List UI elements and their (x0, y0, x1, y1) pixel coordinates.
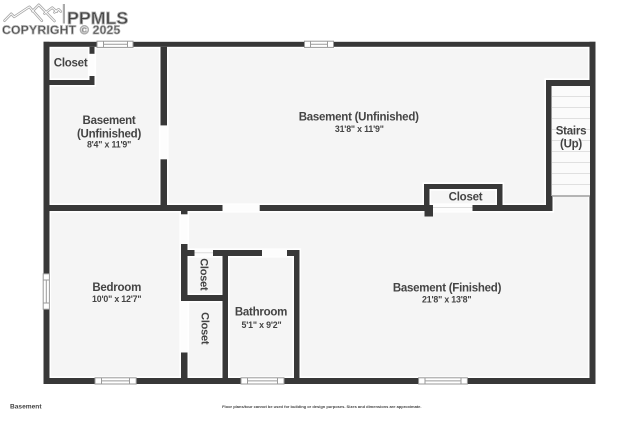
svg-text:COPYRIGHT © 2025: COPYRIGHT © 2025 (2, 23, 121, 37)
svg-text:Bedroom: Bedroom (92, 282, 141, 294)
svg-text:Closet: Closet (54, 57, 88, 69)
svg-text:10'0" x 12'7": 10'0" x 12'7" (92, 294, 141, 304)
svg-text:Basement (Unfinished): Basement (Unfinished) (299, 111, 419, 123)
svg-text:Closet: Closet (197, 258, 209, 291)
svg-text:Floor plans/tour cannot be use: Floor plans/tour cannot be used for buil… (222, 404, 421, 409)
svg-text:(Up): (Up) (560, 138, 582, 150)
svg-text:Basement (Finished): Basement (Finished) (393, 282, 502, 294)
svg-text:Bathroom: Bathroom (235, 307, 287, 319)
svg-text:5'1" x 9'2": 5'1" x 9'2" (242, 320, 282, 330)
svg-text:Stairs: Stairs (556, 125, 586, 137)
svg-text:21'8" x 13'8": 21'8" x 13'8" (422, 295, 471, 305)
svg-text:31'8" x 11'9": 31'8" x 11'9" (335, 124, 384, 134)
svg-text:Closet: Closet (449, 191, 483, 203)
svg-text:Basement: Basement (10, 404, 42, 411)
svg-text:Closet: Closet (199, 312, 211, 345)
svg-text:Basement: Basement (83, 115, 136, 127)
svg-text:8'4" x 11'9": 8'4" x 11'9" (87, 140, 131, 150)
